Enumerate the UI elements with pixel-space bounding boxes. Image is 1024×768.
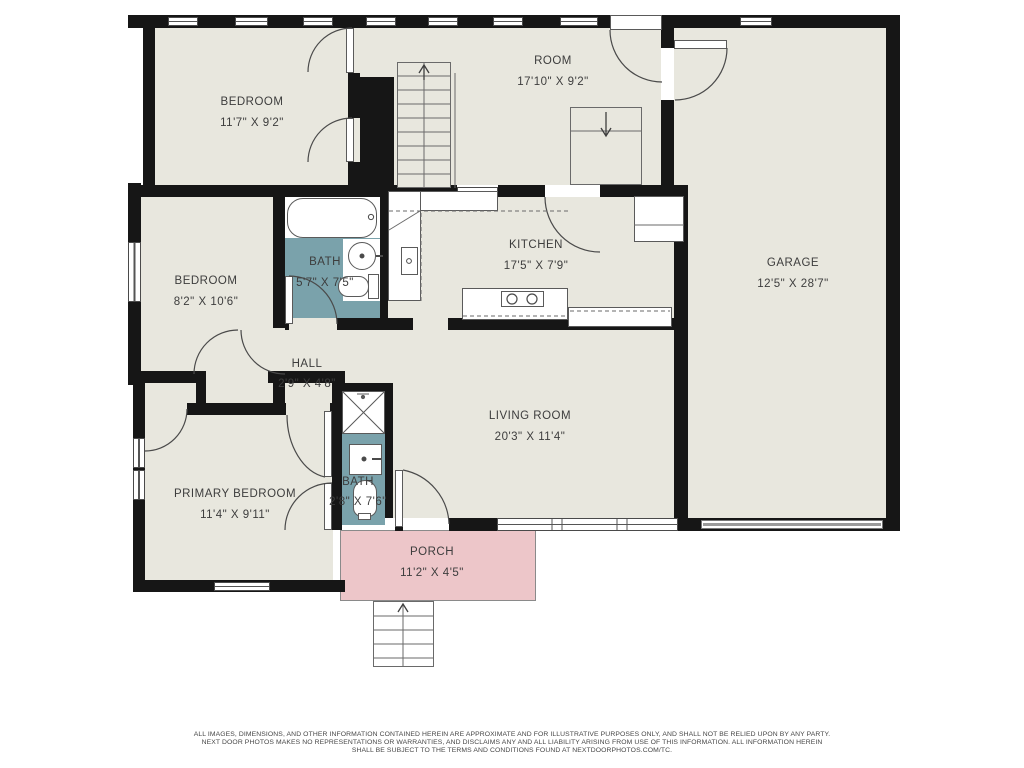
wall [348,15,360,28]
room-dims: 5'7" X 7'5" [296,273,354,294]
room-label-bedroom-top: BEDROOM 11'7" X 9'2" [220,92,284,134]
room-label-garage: GARAGE 12'5" X 28'7" [757,253,829,295]
wall [348,73,360,118]
kitchen-stove [501,291,544,307]
room-label-kitchen: KITCHEN 17'5" X 7'9" [504,235,569,277]
wall [337,318,413,330]
wall [187,403,286,415]
bath2-shower [342,391,385,434]
wall [128,371,205,383]
window [133,470,145,500]
wall [449,518,497,531]
room-label-hall: HALL 2'9" X 4'8" [278,354,336,394]
room-dims: 17'10" X 9'2" [517,72,589,93]
staircase-up [397,62,451,188]
wall [886,15,900,531]
room-dims: 11'7" X 9'2" [220,113,284,134]
disclaimer-line: ALL IMAGES, DIMENSIONS, AND OTHER INFORM… [0,731,1024,739]
room-name: BATH [296,252,354,273]
bedroom1-door-leaf-2 [346,118,354,162]
room-name: GARAGE [757,253,829,274]
room-name: PORCH [400,542,464,563]
room-name: LIVING ROOM [489,406,571,427]
room-label-primary-bedroom: PRIMARY BEDROOM 11'4" X 9'11" [174,484,296,526]
floor-plan: BEDROOM 11'7" X 9'2" ROOM 17'10" X 9'2" … [0,0,1024,768]
bath1-door-leaf [285,276,293,324]
wall [360,77,394,187]
wall [661,15,674,48]
window [128,242,141,302]
wall [133,403,145,415]
kitchen-counter-right [568,307,672,327]
porch-steps [373,601,434,667]
room-dims: 8'2" X 10'6" [174,292,239,313]
room-name: BATH [329,472,387,492]
room-dims: 20'3" X 11'4" [489,427,571,448]
wall [348,162,360,188]
bath2-sink [349,444,382,475]
window [366,17,396,26]
room-label-room: ROOM 17'10" X 9'2" [517,51,589,93]
room-dims: 11'2" X 4'5" [400,563,464,584]
room-label-porch: PORCH 11'2" X 4'5" [400,542,464,584]
entry-door-landing [610,15,662,30]
window [560,17,598,26]
room-dims: 2'8" X 7'6" [329,492,387,512]
window [303,17,333,26]
primary-closet-door-leaf [324,411,332,477]
wall [661,100,674,197]
room-label-bath1: BATH 5'7" X 7'5" [296,252,354,294]
room-label-bath2: BATH 2'8" X 7'6" [329,472,387,512]
wall [273,185,285,328]
wall [498,185,545,197]
room-dims: 11'4" X 9'11" [174,505,296,526]
room-dims: 17'5" X 7'9" [504,256,569,277]
garage-door [701,520,883,529]
room-name: HALL [278,354,336,374]
disclaimer-line: NEXT DOOR PHOTOS MAKES NO REPRESENTATION… [0,739,1024,747]
disclaimer-line: SHALL BE SUBJECT TO THE TERMS AND CONDIT… [0,747,1024,755]
room-label-living-room: LIVING ROOM 20'3" X 11'4" [489,406,571,448]
room-dims: 12'5" X 28'7" [757,274,829,295]
room-name: BEDROOM [220,92,284,113]
room-name: KITCHEN [504,235,569,256]
kitchen-counter-left [388,191,421,301]
kitchen-sink [401,247,418,275]
bath2-toilet-base [358,513,371,520]
window [214,582,270,591]
bath1-bathtub [287,198,377,238]
room-name: BEDROOM [174,271,239,292]
wall [380,185,388,330]
refrigerator [634,196,684,242]
disclaimer: ALL IMAGES, DIMENSIONS, AND OTHER INFORM… [0,731,1024,756]
front-door-leaf [395,470,403,527]
garage-door-leaf [674,40,727,49]
room-dims: 2'9" X 4'8" [278,374,336,394]
window [493,17,523,26]
window [428,17,458,26]
window [168,17,198,26]
living-room-window-band [497,518,678,531]
bath1-toilet-tank [368,274,379,299]
room-name: PRIMARY BEDROOM [174,484,296,505]
staircase-down [570,107,642,185]
window [133,438,145,468]
window [740,17,772,26]
wall [143,15,155,191]
room-label-bedroom-mid: BEDROOM 8'2" X 10'6" [174,271,239,313]
bedroom1-door-leaf-1 [346,28,354,73]
room-name: ROOM [517,51,589,72]
window [235,17,268,26]
